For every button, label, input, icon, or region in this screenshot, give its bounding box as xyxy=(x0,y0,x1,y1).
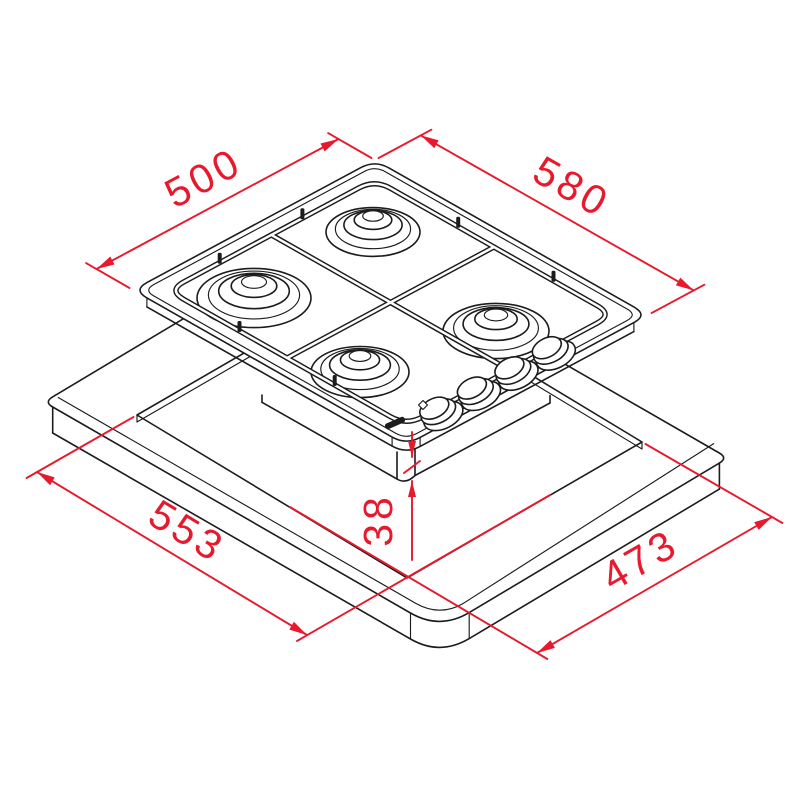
grid-post xyxy=(333,375,337,386)
dimension-label-hob-width: 580 xyxy=(526,147,619,227)
burner-front xyxy=(311,347,409,398)
extension-line xyxy=(27,417,134,478)
burner-cap-top xyxy=(363,211,384,221)
arrowhead xyxy=(754,517,772,530)
grid-post xyxy=(552,271,556,282)
extension-line xyxy=(379,130,432,158)
grid-post xyxy=(300,208,304,219)
arrowhead xyxy=(97,257,115,270)
grid-post xyxy=(218,253,222,264)
burner-cap-top xyxy=(349,351,371,362)
arrowhead xyxy=(676,278,694,291)
arrowhead xyxy=(537,640,555,653)
grid-post xyxy=(456,217,460,228)
burner-cap-top xyxy=(484,309,507,321)
dimension-label-hob-depth: 500 xyxy=(157,138,250,217)
extension-line xyxy=(328,133,371,158)
arrowhead xyxy=(321,139,339,152)
burner-cap-top xyxy=(242,276,267,289)
extension-line xyxy=(86,263,129,288)
burner-back xyxy=(326,208,420,257)
arrowhead xyxy=(421,135,439,148)
extension-line xyxy=(652,285,705,313)
grid-post xyxy=(238,321,242,332)
technical-drawing-page: 500 580 553 473 xyxy=(0,0,800,800)
dimension-label-recess-depth: 38 xyxy=(355,493,401,547)
dimension-label-cutout-depth: 473 xyxy=(594,520,687,600)
arrowhead xyxy=(37,472,55,485)
gas-hob-installation-diagram: 500 580 553 473 xyxy=(0,0,800,800)
arrowhead xyxy=(289,622,307,635)
